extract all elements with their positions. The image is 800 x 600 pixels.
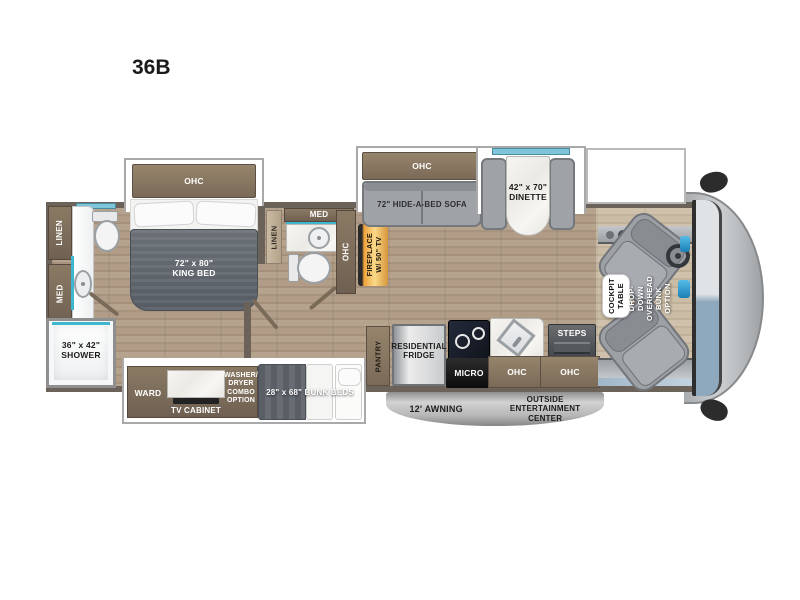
rear-vanity-counter — [72, 206, 94, 328]
fridge-label: RESIDENTIAL FRIDGE — [390, 342, 448, 361]
bunk-beds-label: 28" x 68" BUNK BEDS — [256, 388, 364, 397]
dash-top-knob — [606, 231, 614, 239]
rear-linen-label: LINEN — [55, 220, 65, 246]
mid-toilet — [297, 252, 331, 284]
washer-dryer-label: WASHER/ DRYER COMBO OPTION — [224, 372, 258, 405]
steps-tread — [554, 342, 590, 354]
shower-label: 36" x 42" SHOWER — [50, 340, 112, 360]
sofa-back — [364, 183, 480, 191]
tv-screen — [173, 398, 219, 404]
sofa-label: 72" HIDE-A-BED SOFA — [360, 200, 484, 209]
rear-vanity-drain — [81, 282, 85, 286]
bunkroom-wall-stub — [244, 302, 251, 364]
dinette-window — [492, 148, 570, 155]
awning-label: 12' AWNING — [386, 404, 486, 415]
windshield — [692, 200, 722, 396]
king-bed-label: 72" x 80" KING BED — [130, 258, 258, 278]
fireplace-label: FIREPLACE W/ 50" TV — [366, 233, 383, 276]
mirror-top-icon — [698, 168, 731, 196]
console-cup-blue-1 — [680, 236, 690, 252]
slide-outline-box — [586, 148, 686, 204]
overhead-bunk-label: DROP-DOWN OVERHEAD BUNK OPTION — [627, 276, 672, 321]
floorplan-canvas: 36B LINEN MED 36" x 42" SHOWER OHC 72" x… — [0, 0, 800, 600]
steering-hub — [675, 253, 681, 259]
bed-pillow-left — [133, 200, 194, 227]
ward-label: WARD — [128, 388, 168, 398]
steps-label: STEPS — [548, 328, 596, 338]
cooktop-burner-right — [472, 327, 485, 340]
mid-linen-label: LINEN — [270, 225, 279, 249]
cooktop-burner-left — [455, 334, 470, 349]
kitchen-ohc-label: OHC — [488, 367, 546, 377]
rear-med-label: MED — [55, 285, 65, 304]
entry-ohc-label: OHC — [540, 367, 600, 377]
mid-sink-drain — [317, 236, 321, 240]
micro-label: MICRO — [446, 368, 492, 378]
entertainment-label: OUTSIDE ENTERTAINMENT CENTER — [486, 395, 604, 423]
tv-cabinet-label: TV CABINET — [158, 406, 234, 415]
plan-title: 36B — [132, 56, 171, 80]
tv-cabinet-top — [167, 370, 225, 398]
bedroom-wall-stub — [258, 206, 265, 264]
pantry-label: PANTRY — [374, 340, 383, 372]
bedroom-ohc-label: OHC — [132, 176, 256, 186]
rear-toilet — [94, 220, 120, 252]
sofa-ohc-label: OHC — [362, 161, 482, 171]
awning-bar: 12' AWNING OUTSIDE ENTERTAINMENT CENTER — [386, 392, 604, 426]
console-cup-blue-2 — [678, 280, 690, 298]
dinette-label: 42" x 70" DINETTE — [498, 182, 558, 202]
bunk-pillow — [338, 368, 361, 386]
cockpit-table-label: COCKPIT TABLE — [607, 278, 625, 314]
bed-pillow-right — [195, 200, 256, 227]
hall-ohc-label: OHC — [341, 243, 351, 262]
shower-accent-strip — [52, 322, 110, 325]
